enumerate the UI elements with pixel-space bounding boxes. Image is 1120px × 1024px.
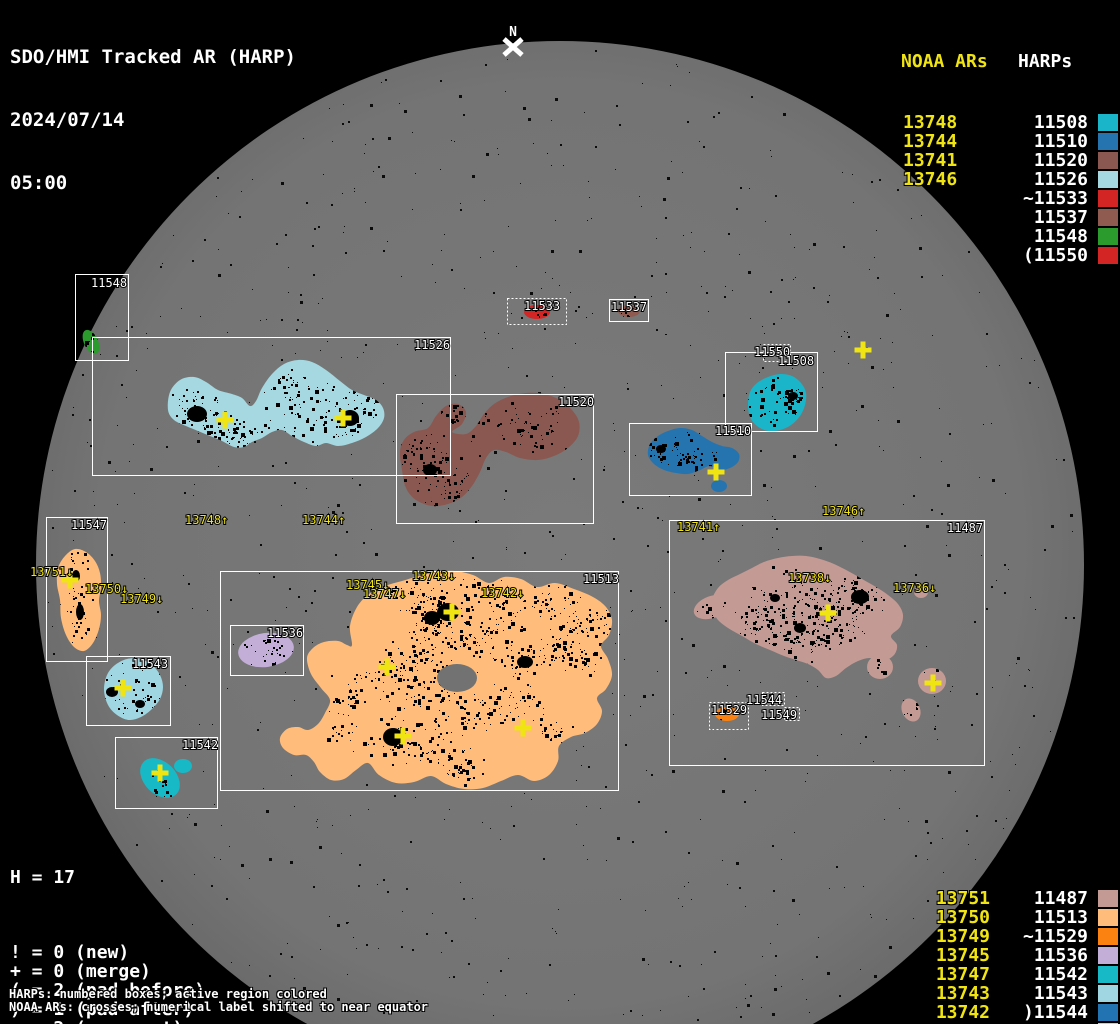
harp-number: 11526 [990, 169, 1088, 190]
color-swatch [1098, 114, 1118, 131]
legend-row-11542: 1374711542 [901, 965, 1118, 984]
harp-box-label-11537: 11537 [611, 300, 647, 314]
time-label: 05:00 [10, 173, 296, 194]
color-swatch [1098, 928, 1118, 945]
harp-box-label-11508: 11508 [778, 354, 814, 368]
color-swatch [1098, 190, 1118, 207]
noaa-label-13742: 13742↓ [481, 586, 524, 600]
noaa-label-13748: 13748↑ [185, 513, 228, 527]
noaa-number: 13745 [901, 945, 990, 966]
color-swatch [1098, 133, 1118, 150]
noaa-label-13741: 13741↑ [677, 520, 720, 534]
noaa-number: 13749 [901, 926, 990, 947]
stat-line: ! = 0 (new) [10, 943, 216, 962]
harp-number: ~11529 [990, 926, 1088, 947]
legend-row-11526: 1374611526 [901, 170, 1118, 189]
harp-box-label-11542: 11542 [182, 738, 218, 752]
legend-row-11510: 1374411510 [901, 132, 1118, 151]
color-swatch [1098, 171, 1118, 188]
legend-row-11544: 13742)11544 [901, 1003, 1118, 1022]
harp-number: (11550 [990, 245, 1088, 266]
color-swatch [1098, 209, 1118, 226]
color-swatch [1098, 890, 1118, 907]
color-swatch [1098, 985, 1118, 1002]
noaa-number: 13741 [901, 150, 990, 171]
color-swatch [1098, 247, 1118, 264]
harp-box-label-11544: 11544 [746, 693, 782, 707]
sdo-hmi-harp-view: 1154811526115331153711550115081152011510… [0, 0, 1120, 1024]
harp-box-label-11549: 11549 [761, 708, 797, 722]
harps-header: HARPs [1018, 51, 1072, 72]
color-swatch [1098, 1004, 1118, 1021]
footnote-line: NOAA ARs: crosses; numerical label shift… [9, 1001, 428, 1014]
legend-row-11537: 11537 [901, 208, 1118, 227]
harp-box-label-11536: 11536 [267, 626, 303, 640]
color-swatch [1098, 947, 1118, 964]
legend-top: NOAA ARs HARPs 1374811508137441151013741… [901, 10, 1118, 307]
legend-row-11543: 1374311543 [901, 984, 1118, 1003]
harp-box-label-11533: 11533 [524, 299, 560, 313]
page-title: SDO/HMI Tracked AR (HARP) [10, 47, 296, 68]
legend-row-11487: 1375111487 [901, 889, 1118, 908]
harp-number: 11542 [990, 964, 1088, 985]
harp-box-label-11513: 11513 [583, 572, 619, 586]
legend-bottom: 1375111487137501151313749~11529137451153… [901, 847, 1118, 1024]
harp-box-label-11547: 11547 [71, 518, 107, 532]
footnotes: HARPs: numbered boxes; active region col… [9, 988, 428, 1014]
legend-row-11550: (11550 [901, 246, 1118, 265]
north-label: N [509, 25, 517, 40]
harp-box-label-11520: 11520 [558, 395, 594, 409]
stat-line: + = 0 (merge) [10, 962, 216, 981]
legend-row-11520: 1374111520 [901, 151, 1118, 170]
harp-number: 11543 [990, 983, 1088, 1004]
legend-row-11529: 13749~11529 [901, 927, 1118, 946]
color-swatch [1098, 228, 1118, 245]
noaa-number: 13751 [901, 888, 990, 909]
noaa-label-13738: 13738↓ [788, 571, 831, 585]
harp-number: )11544 [990, 1002, 1088, 1023]
harp-box-label-11543: 11543 [132, 657, 168, 671]
noaa-label-13743: 13743↓ [412, 569, 455, 583]
legend-row-11508: 1374811508 [901, 113, 1118, 132]
harp-number: 11487 [990, 888, 1088, 909]
harp-number: 11510 [990, 131, 1088, 152]
harp-number: 11537 [990, 207, 1088, 228]
header: SDO/HMI Tracked AR (HARP) 2024/07/14 05:… [10, 5, 296, 236]
harp-number: 11536 [990, 945, 1088, 966]
noaa-number: 13748 [901, 112, 990, 133]
legend-top-header: NOAA ARs HARPs [901, 52, 1118, 71]
color-swatch [1098, 966, 1118, 983]
harp-count: H = 17 [10, 868, 216, 887]
noaa-label-13747: 13747↓ [363, 587, 406, 601]
noaa-number: 13742 [901, 1002, 990, 1023]
noaa-label-13751: 13751↓ [30, 565, 73, 579]
date-label: 2024/07/14 [10, 110, 296, 131]
noaa-number: 13744 [901, 131, 990, 152]
noaa-number: 13747 [901, 964, 990, 985]
noaa-number: 13750 [901, 907, 990, 928]
legend-row-11533: ~11533 [901, 189, 1118, 208]
legend-row-11536: 1374511536 [901, 946, 1118, 965]
harp-number: 11548 [990, 226, 1088, 247]
legend-bottom-rows: 1375111487137501151313749~11529137451153… [901, 889, 1118, 1024]
noaa-label-13736: 13736↓ [893, 581, 936, 595]
harp-box-label-11487: 11487 [947, 521, 983, 535]
harp-box-label-11510: 11510 [715, 424, 751, 438]
harp-box-label-11526: 11526 [414, 338, 450, 352]
legend-top-rows: 1374811508137441151013741115201374611526… [901, 113, 1118, 265]
harp-number: ~11533 [990, 188, 1088, 209]
noaa-number: 13746 [901, 169, 990, 190]
noaa-number: 13743 [901, 983, 990, 1004]
harp-box-label-11548: 11548 [91, 276, 127, 290]
harp-number: 11508 [990, 112, 1088, 133]
noaa-label-13746: 13746↑ [822, 504, 865, 518]
color-swatch [1098, 152, 1118, 169]
harp-number: 11513 [990, 907, 1088, 928]
color-swatch [1098, 909, 1118, 926]
harp-number: 11520 [990, 150, 1088, 171]
noaa-label-13744: 13744↑ [302, 513, 345, 527]
harp-box-label-11529: 11529 [711, 703, 747, 717]
legend-row-11548: 11548 [901, 227, 1118, 246]
legend-row-11513: 1375011513 [901, 908, 1118, 927]
noaa-ars-header: NOAA ARs [901, 51, 1018, 72]
noaa-label-13749: 13749↓ [120, 592, 163, 606]
